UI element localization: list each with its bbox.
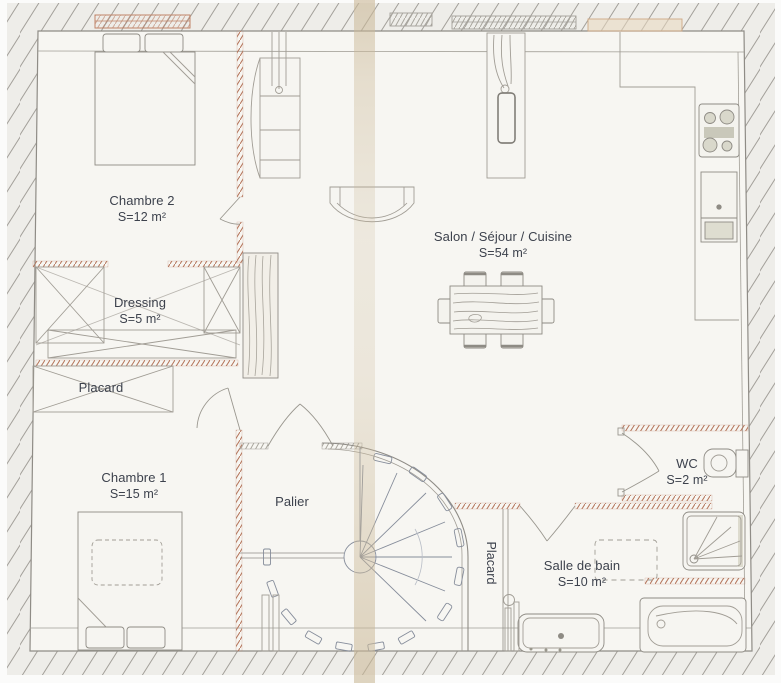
window-kitchen-icon xyxy=(588,19,682,31)
room-label-dressing: Dressing S=5 m² xyxy=(114,295,166,327)
room-name: Salon / Séjour / Cuisine xyxy=(434,229,572,245)
room-area: S=15 m² xyxy=(101,486,166,502)
room-label-salon: Salon / Séjour / Cuisine S=54 m² xyxy=(434,229,572,261)
room-label-placard-bath: Placard xyxy=(483,541,499,584)
room-name: Placard xyxy=(483,541,499,584)
room-label-chambre1: Chambre 1 S=15 m² xyxy=(101,470,166,502)
wood-door-panel xyxy=(243,253,278,378)
window-chambre2-icon xyxy=(95,15,190,28)
room-name: Placard xyxy=(79,380,124,396)
vanity-basin-icon xyxy=(518,614,604,652)
room-label-wc: WC S=2 m² xyxy=(666,456,707,488)
room-label-placard-upper: Placard xyxy=(79,380,124,396)
room-label-chambre2: Chambre 2 S=12 m² xyxy=(109,193,174,225)
bed-chambre2-icon xyxy=(95,34,195,165)
cooktop-icon xyxy=(699,104,739,157)
room-area: S=54 m² xyxy=(434,245,572,261)
room-label-palier: Palier xyxy=(275,494,309,510)
chimney-flue-icon xyxy=(487,33,525,178)
room-name: Chambre 1 xyxy=(101,470,166,486)
floorplan-drawing xyxy=(0,0,781,683)
bathtub-icon xyxy=(640,598,746,652)
window-salon-icon xyxy=(452,16,576,29)
room-area: S=10 m² xyxy=(544,574,620,590)
room-name: Palier xyxy=(275,494,309,510)
room-name: Chambre 2 xyxy=(109,193,174,209)
kitchen-sink-icon xyxy=(701,172,737,242)
bed-chambre1-icon xyxy=(78,512,182,650)
room-area: S=2 m² xyxy=(666,472,707,488)
shower-icon xyxy=(683,512,745,570)
floorplan-page: Chambre 2 S=12 m² Dressing S=5 m² Placar… xyxy=(0,0,781,683)
room-area: S=5 m² xyxy=(114,311,166,327)
room-area: S=12 m² xyxy=(109,209,174,225)
room-name: Dressing xyxy=(114,295,166,311)
room-name: Salle de bain xyxy=(544,558,620,574)
room-label-salle-de-bain: Salle de bain S=10 m² xyxy=(544,558,620,590)
room-name: WC xyxy=(666,456,707,472)
window-salon-small-icon xyxy=(390,13,432,26)
toilet-icon xyxy=(704,449,748,477)
